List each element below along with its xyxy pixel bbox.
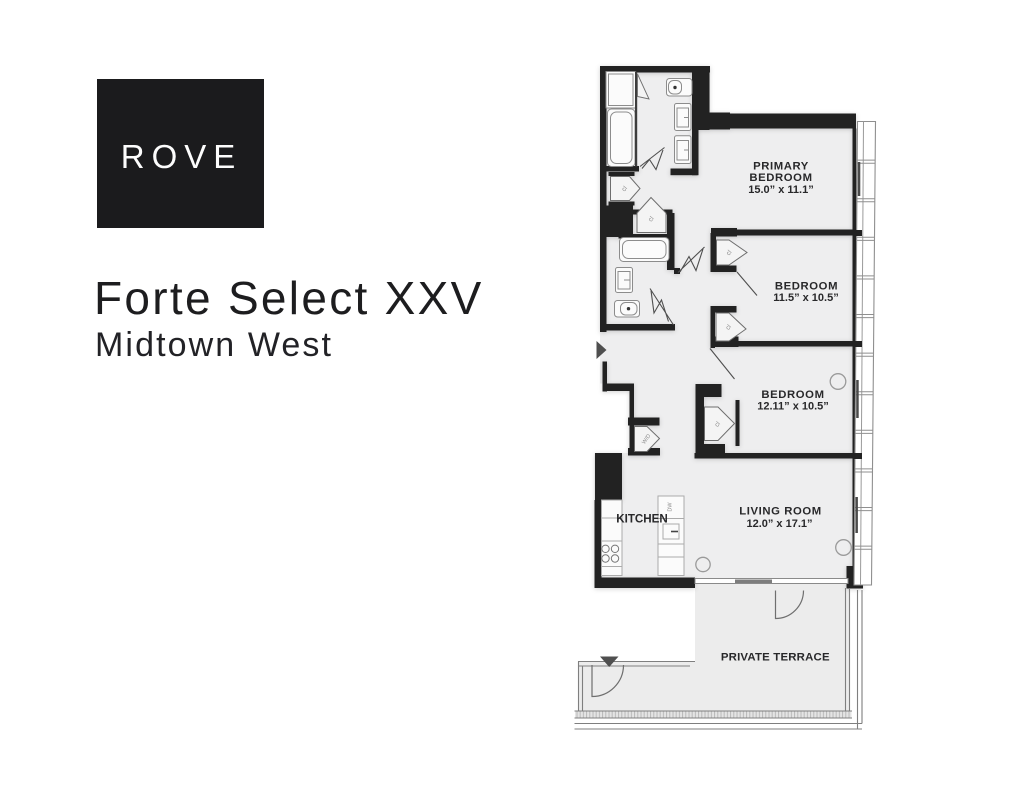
svg-text:15.0” x 11.1”: 15.0” x 11.1” <box>748 184 813 196</box>
svg-text:LIVING ROOM: LIVING ROOM <box>739 506 822 518</box>
svg-text:DW: DW <box>668 502 674 512</box>
svg-text:12.0” x 17.1”: 12.0” x 17.1” <box>746 518 812 530</box>
svg-text:BEDROOM: BEDROOM <box>775 281 838 293</box>
svg-text:BEDROOM: BEDROOM <box>749 172 812 184</box>
svg-text:BEDROOM: BEDROOM <box>761 389 824 401</box>
svg-text:11.5” x 10.5”: 11.5” x 10.5” <box>773 292 838 304</box>
svg-text:PRIMARY: PRIMARY <box>753 161 809 173</box>
svg-text:KITCHEN: KITCHEN <box>616 513 668 526</box>
svg-text:PRIVATE TERRACE: PRIVATE TERRACE <box>721 652 830 664</box>
svg-text:12.11” x 10.5”: 12.11” x 10.5” <box>757 401 829 413</box>
